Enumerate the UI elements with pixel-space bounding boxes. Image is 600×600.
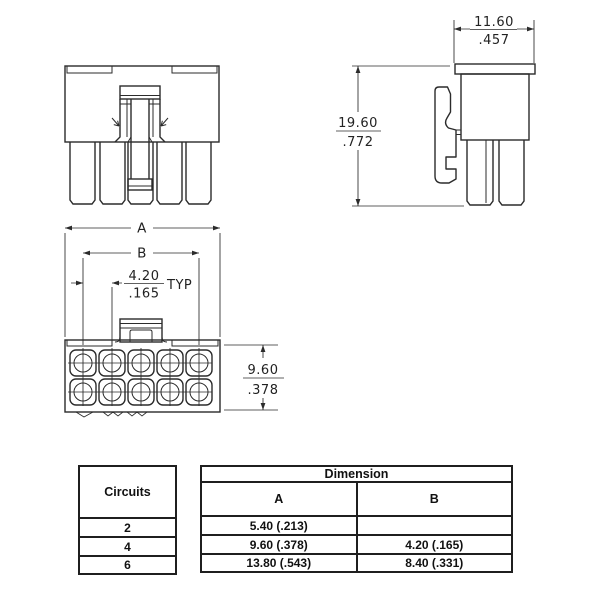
face-latch-tab [115, 319, 167, 342]
circuits-value: 2 [79, 518, 176, 537]
dim-a-value: 13.80 (.543) [201, 554, 357, 572]
face-top-notch-right [172, 340, 218, 346]
front-latch [112, 86, 168, 190]
circuits-header-cell: Circuits [79, 466, 176, 518]
dim-row-span-in: .378 [248, 383, 279, 398]
dim-top-width-mm: 11.60 [474, 15, 514, 30]
dim-a-value: 5.40 (.213) [201, 516, 357, 535]
dim-b-value: 4.20 (.165) [357, 535, 513, 554]
dim-pitch-in: .165 [129, 287, 160, 302]
side-body-lip [455, 64, 535, 74]
side-body [461, 74, 529, 140]
bottom-break-marks [76, 412, 147, 417]
face-top-notch-left [67, 340, 112, 346]
side-view-drawing: 11.60 .457 19.60 .772 [336, 15, 535, 206]
circuits-table: Circuits 2 4 6 [78, 465, 177, 575]
dim-b-label: B [137, 246, 147, 262]
mating-face-drawing: A B 4.20 .165 TYP 9.60 [65, 221, 284, 418]
circuits-value: 6 [79, 556, 176, 574]
front-top-notch-left [67, 66, 112, 73]
front-legs [70, 142, 211, 204]
col-a-header-cell: A [201, 482, 357, 516]
dimension-table: Dimension A B 5.40 (.213) 9.60 (.378) 4.… [200, 465, 513, 573]
column-centerlines [83, 348, 199, 406]
dim-row-span-mm: 9.60 [248, 363, 279, 378]
dim-a-value: 9.60 (.378) [201, 535, 357, 554]
dim-row-span: 9.60 .378 [224, 345, 284, 410]
front-view-drawing [65, 66, 219, 204]
dim-b-value: 8.40 (.331) [357, 554, 513, 572]
latch-pointer-right [161, 118, 168, 126]
dim-a-label: A [137, 221, 147, 237]
row-centerlines [68, 363, 212, 392]
dim-top-width-in: .457 [479, 33, 510, 48]
dim-overall-height-mm: 19.60 [338, 116, 378, 131]
dim-pitch-typ: TYP [166, 278, 192, 293]
dim-b-value [357, 516, 513, 535]
technical-drawing-page: 11.60 .457 19.60 .772 [0, 0, 600, 600]
dim-top-width: 11.60 .457 [454, 15, 534, 63]
dim-pitch-mm: 4.20 [129, 269, 160, 284]
front-top-notch-right [172, 66, 217, 73]
dim-pitch: 4.20 .165 TYP [71, 269, 192, 345]
circuits-value: 4 [79, 537, 176, 556]
side-latch-hook [435, 87, 461, 183]
side-legs [467, 140, 524, 205]
dimension-header-cell: Dimension [201, 466, 512, 482]
col-b-header-cell: B [357, 482, 513, 516]
dim-overall-height-in: .772 [343, 135, 374, 150]
front-body [65, 66, 219, 142]
latch-pointer-left [112, 118, 119, 126]
